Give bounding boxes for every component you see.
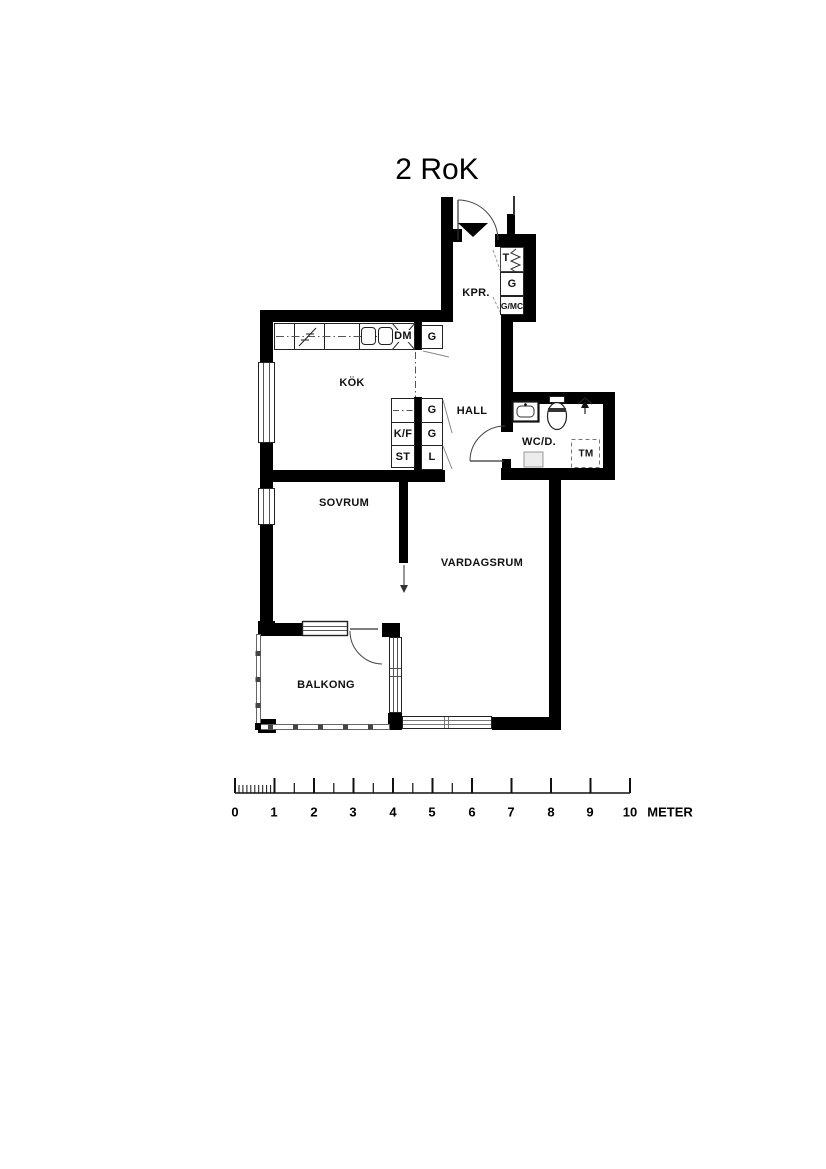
fixture-label-g1: G	[428, 404, 437, 416]
washbasin-bowl	[517, 406, 534, 417]
cabinet-swing-line	[493, 297, 500, 312]
scale-label-0: 0	[231, 805, 238, 820]
scale-label-4: 4	[389, 805, 396, 820]
fixture-label-g-kpr: G	[508, 278, 517, 290]
sovrum-balcony-window	[303, 622, 348, 636]
fixture-label-g2: G	[428, 428, 437, 440]
fixture-label-g-top: G	[428, 331, 437, 343]
scale-label-6: 6	[468, 805, 475, 820]
fixture-label-tm: TM	[578, 449, 593, 460]
fixture-label-dm: DM	[393, 330, 413, 342]
entrance-arrow-icon	[458, 223, 488, 237]
fixture-label-st: ST	[396, 451, 411, 463]
scale-label-10: 10	[623, 805, 637, 820]
washbasin-tap-dot	[524, 403, 527, 406]
fixture-label-t: T	[502, 252, 509, 264]
scale-label-3: 3	[349, 805, 356, 820]
page-title: 2 RoK	[395, 153, 478, 187]
entrance-door-swing-arc	[458, 200, 498, 240]
scale-unit-label: METER	[647, 805, 693, 820]
fixture-label-gmc: G/MC	[501, 301, 523, 311]
opening-direction-arrowhead	[400, 585, 408, 593]
toilet-seat-band	[548, 408, 566, 412]
scale-label-9: 9	[586, 805, 593, 820]
cabinet-swing-line	[443, 446, 452, 469]
room-label-vardagsrum: VARDAGSRUM	[441, 557, 523, 569]
toilet-icon	[548, 403, 567, 430]
room-label-balkong: BALKONG	[297, 679, 355, 691]
vardagsrum-bottom-window	[403, 717, 492, 729]
room-label-hall: HALL	[457, 405, 488, 417]
cabinet-swing-line	[493, 250, 500, 270]
room-label-wcd: WC/D.	[522, 436, 556, 448]
scale-label-7: 7	[507, 805, 514, 820]
scale-label-8: 8	[547, 805, 554, 820]
scale-bar	[235, 778, 630, 793]
toilet-cistern	[550, 397, 565, 403]
room-label-sovrum: SOVRUM	[319, 497, 369, 509]
scale-label-5: 5	[428, 805, 435, 820]
kitchen-window	[259, 363, 275, 443]
sink-icon	[379, 328, 393, 345]
floor-plan-page: 2 RoK KPR. KÖK HALL WC/D. SOVRUM VARDAGS…	[0, 0, 826, 1169]
cabinet-swing-line	[423, 351, 449, 357]
room-label-kok: KÖK	[339, 377, 364, 389]
wc-door-swing-arc	[470, 426, 505, 461]
fixture-label-kf: K/F	[394, 428, 413, 440]
shower-drain-arrowhead	[581, 400, 589, 408]
cabinet-swing-line	[443, 400, 452, 433]
scale-label-1: 1	[270, 805, 277, 820]
sovrum-window	[259, 489, 275, 525]
floor-drain-square	[524, 452, 543, 467]
balcony-door-swing-arc	[350, 631, 382, 664]
fixture-label-l: L	[428, 451, 435, 463]
sink-icon	[362, 328, 376, 345]
vardagsrum-balcony-window	[390, 638, 402, 713]
room-label-kpr: KPR.	[462, 287, 489, 299]
scale-label-2: 2	[310, 805, 317, 820]
